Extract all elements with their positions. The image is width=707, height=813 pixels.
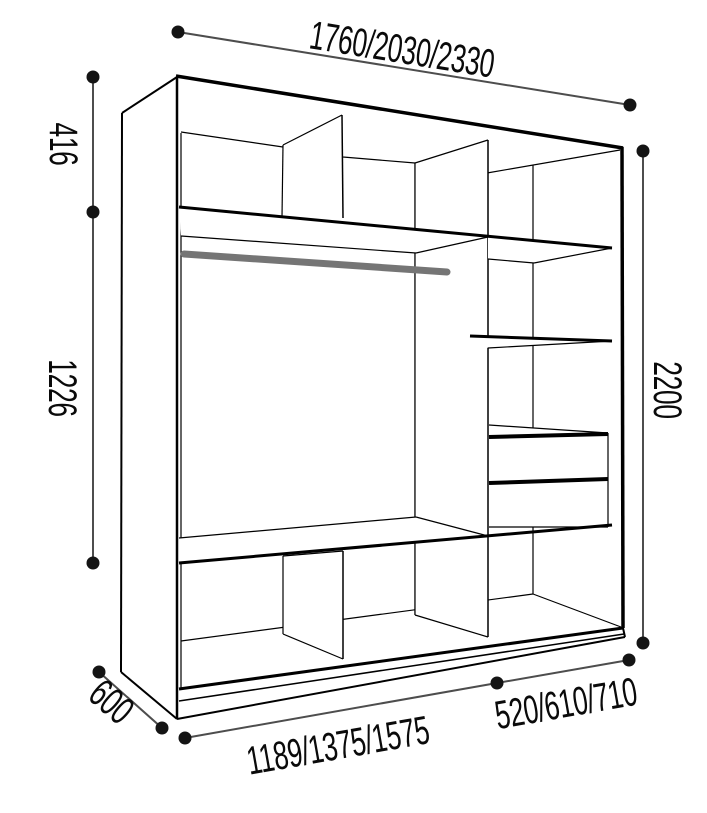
- cabinet-outer-frame: [121, 76, 625, 719]
- dim-label-top-section-height: 416: [43, 122, 83, 165]
- dim-label-hanging-section-height: 1226: [42, 359, 82, 416]
- drawer-unit: [489, 425, 608, 527]
- hanging-rod: [184, 254, 447, 272]
- wardrobe-dimensions-diagram: 1760/2030/2330 416 1226 2200 600 1189/13…: [0, 0, 707, 813]
- bottom-fin-divider: [283, 551, 343, 659]
- top-fin-divider: [282, 115, 343, 218]
- dim-label-total-height: 2200: [647, 361, 687, 418]
- right-column-shelf: [470, 336, 612, 348]
- center-divider-panel: [415, 140, 488, 637]
